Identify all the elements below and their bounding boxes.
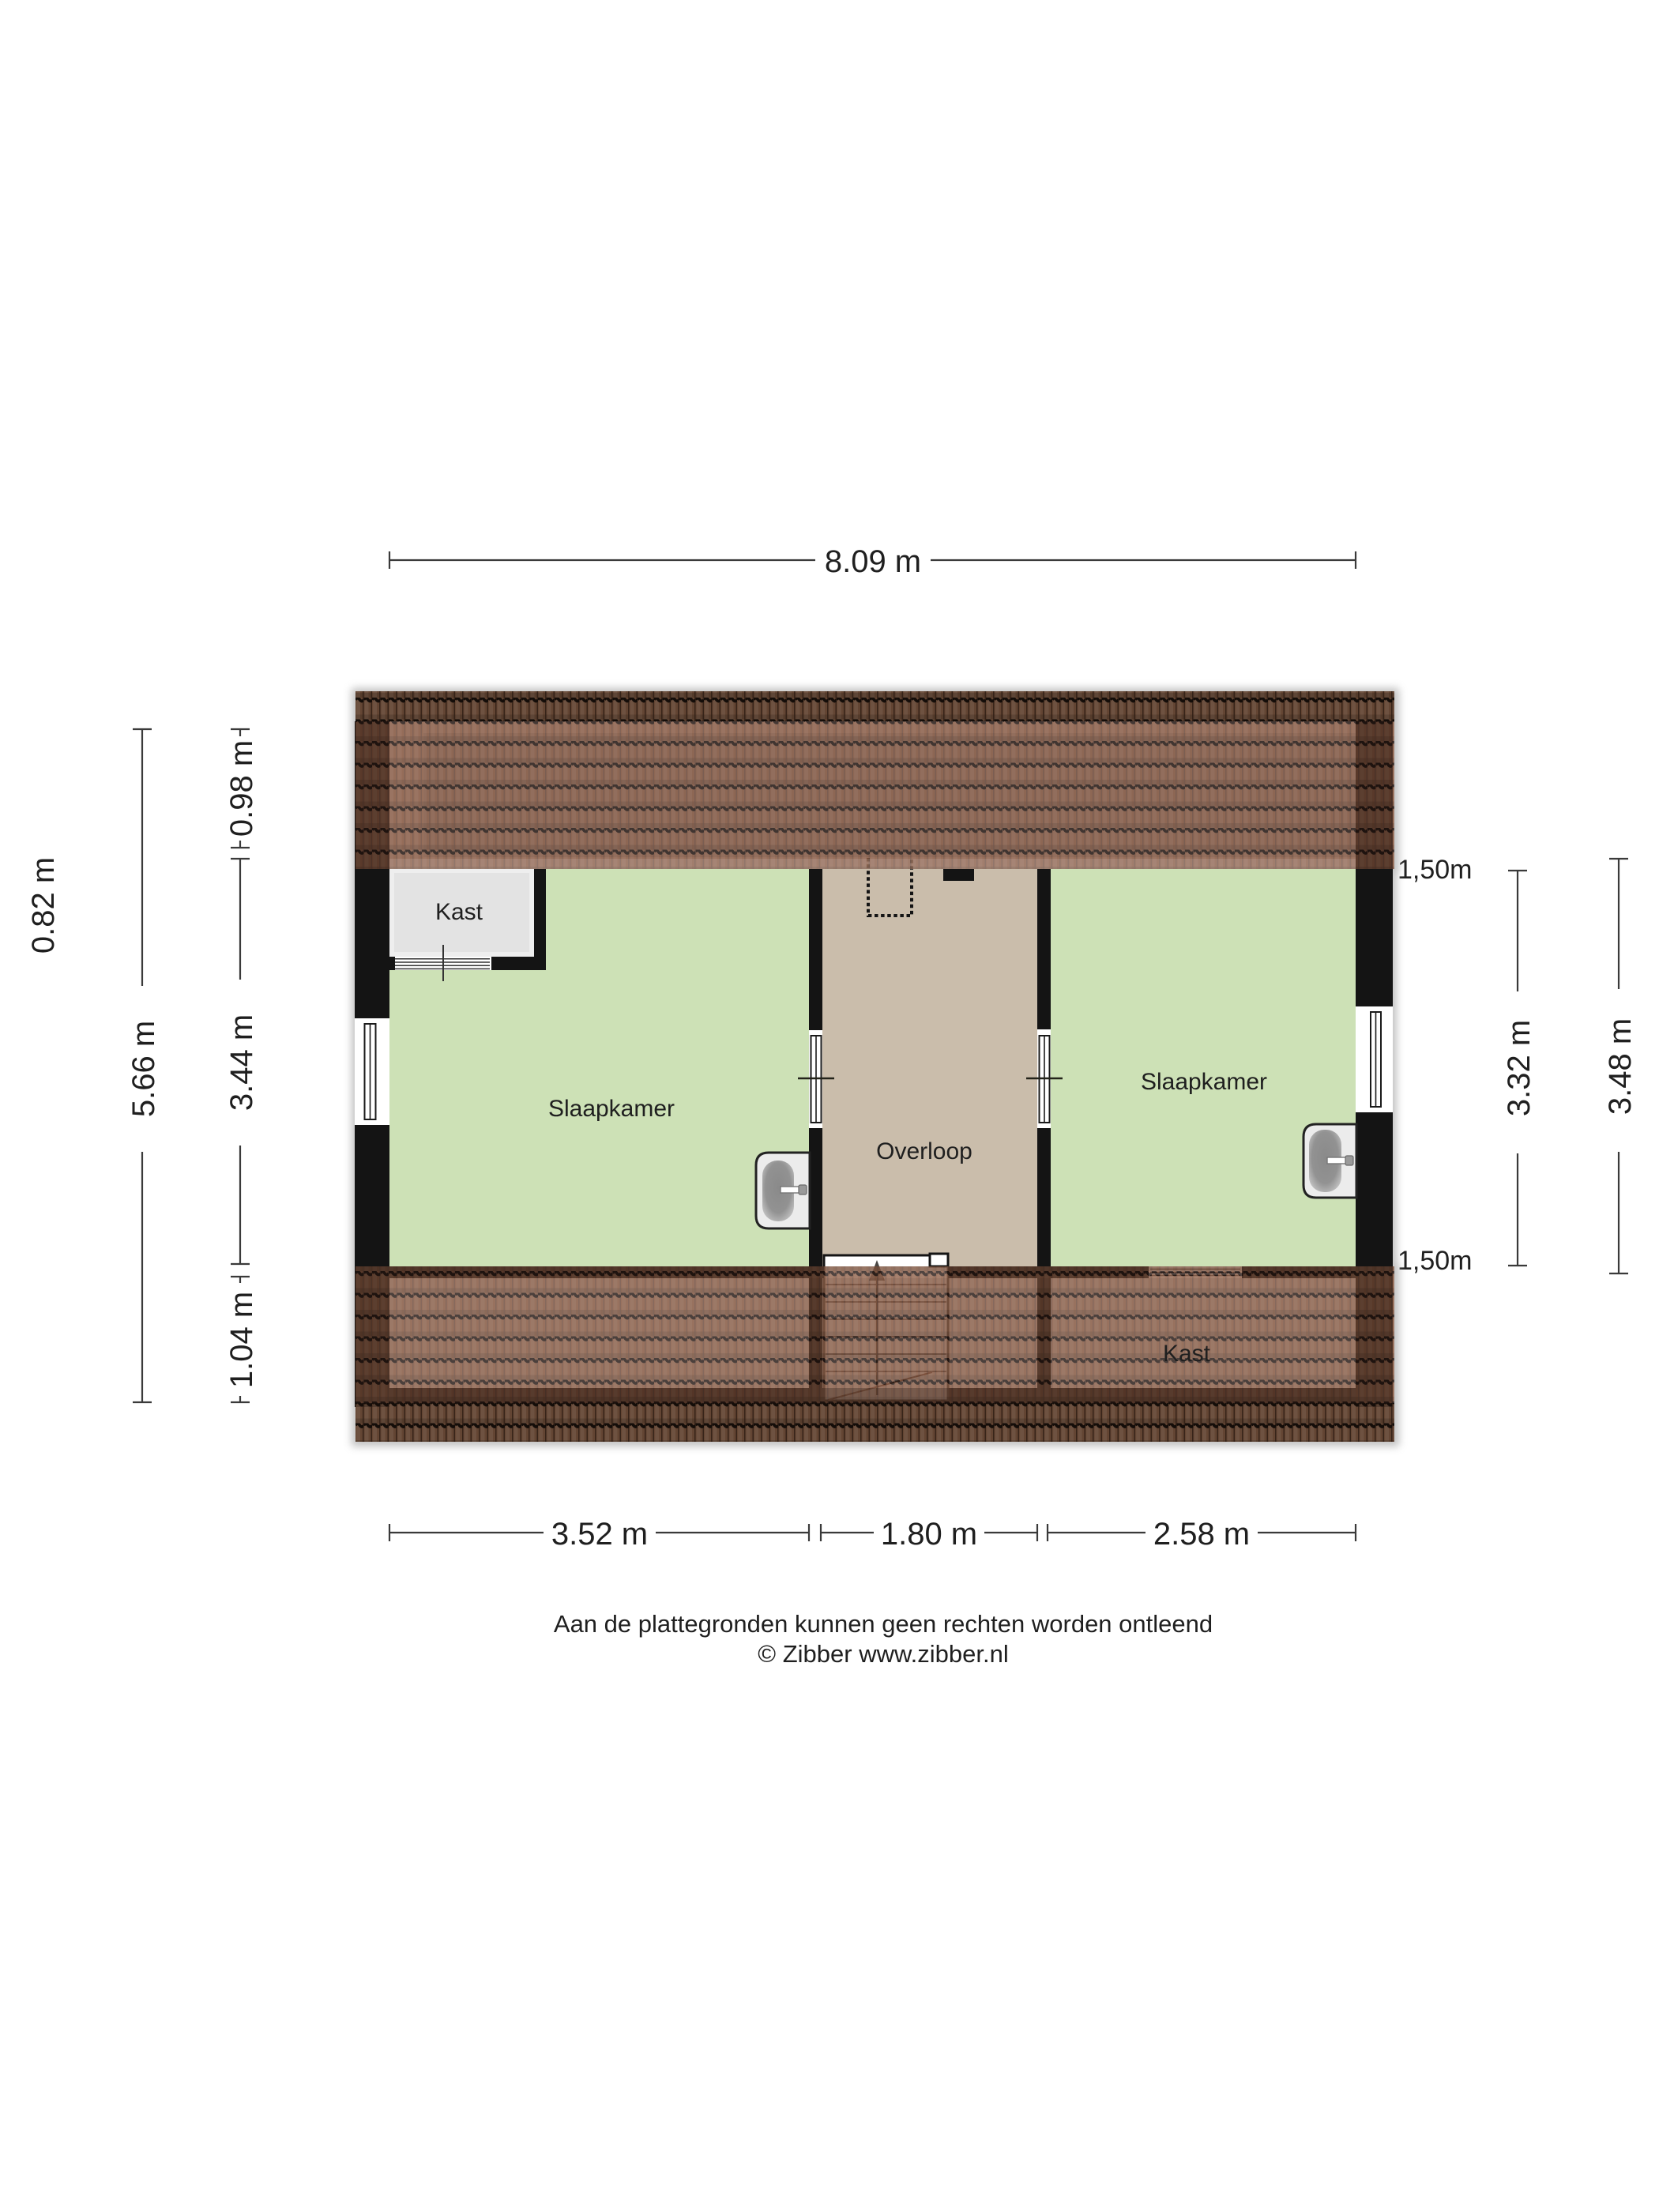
svg-text:3.48 m: 3.48 m (1603, 1018, 1638, 1115)
svg-text:Kast: Kast (1163, 1341, 1211, 1367)
svg-text:1,50m: 1,50m (1398, 855, 1473, 885)
svg-text:0.82 m: 0.82 m (26, 857, 61, 954)
svg-text:3.44 m: 3.44 m (224, 1014, 259, 1111)
svg-text:3.32 m: 3.32 m (1502, 1020, 1537, 1116)
svg-text:2.58 m: 2.58 m (1153, 1517, 1250, 1552)
svg-text:Overloop: Overloop (876, 1138, 972, 1164)
svg-text:© Zibber www.zibber.nl: © Zibber www.zibber.nl (758, 1640, 1008, 1668)
svg-text:5.66 m: 5.66 m (126, 1021, 161, 1117)
svg-text:Slaapkamer: Slaapkamer (1141, 1069, 1267, 1095)
svg-text:8.09 m: 8.09 m (825, 544, 921, 579)
svg-text:1.80 m: 1.80 m (881, 1517, 977, 1552)
svg-text:1,50m: 1,50m (1398, 1246, 1473, 1276)
svg-text:Slaapkamer: Slaapkamer (548, 1096, 675, 1122)
svg-text:0.98 m: 0.98 m (224, 740, 259, 837)
svg-text:Kast: Kast (435, 899, 483, 925)
svg-text:3.52 m: 3.52 m (551, 1517, 648, 1552)
svg-text:Aan de plattegronden kunnen ge: Aan de plattegronden kunnen geen rechten… (554, 1610, 1213, 1638)
svg-text:1.04 m: 1.04 m (224, 1292, 259, 1388)
